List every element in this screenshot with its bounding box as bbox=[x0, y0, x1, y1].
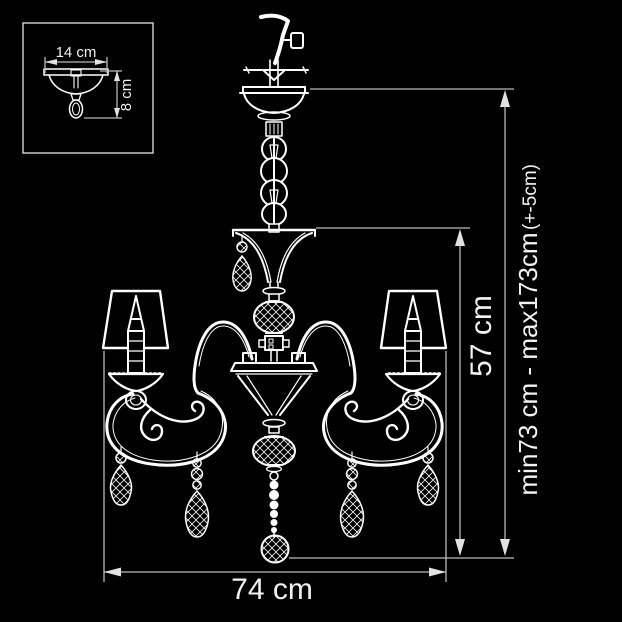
inset-width-label: 14 cm bbox=[56, 44, 97, 61]
left-arm-assembly bbox=[103, 291, 252, 537]
ceiling-canopy bbox=[240, 87, 308, 120]
main-chandelier bbox=[103, 16, 446, 563]
body-height-label: 57 cm bbox=[465, 295, 498, 377]
square-connector bbox=[259, 336, 289, 361]
chandelier-technical-drawing: min73 cm - max173cm (+-5cm) 57 cm 74 cm bbox=[0, 0, 622, 622]
inset-height-label: 8 cm bbox=[118, 79, 135, 112]
decorative-chain bbox=[261, 122, 287, 232]
bottom-crystal-ball bbox=[262, 532, 289, 563]
center-plate bbox=[231, 353, 317, 374]
bead-chain bbox=[269, 481, 279, 534]
top-frame-bar bbox=[233, 230, 315, 236]
inset-detail-box: 14 cm 8 cm bbox=[23, 23, 153, 153]
hanging-range-label: min73 cm - max173cm bbox=[513, 233, 543, 496]
width-label: 74 cm bbox=[231, 573, 313, 606]
lower-faceted-ball bbox=[253, 436, 295, 480]
hanging-tolerance-label: (+-5cm) bbox=[520, 164, 541, 230]
ceiling-hook bbox=[261, 16, 303, 63]
dim-width: 74 cm bbox=[104, 351, 446, 606]
lower-funnel bbox=[238, 376, 310, 433]
right-arm-assembly bbox=[297, 291, 446, 537]
small-crystal-drop bbox=[233, 235, 251, 291]
upper-faceted-ball bbox=[254, 301, 294, 333]
technical-drawing-page: min73 cm - max173cm (+-5cm) 57 cm 74 cm bbox=[0, 0, 622, 622]
